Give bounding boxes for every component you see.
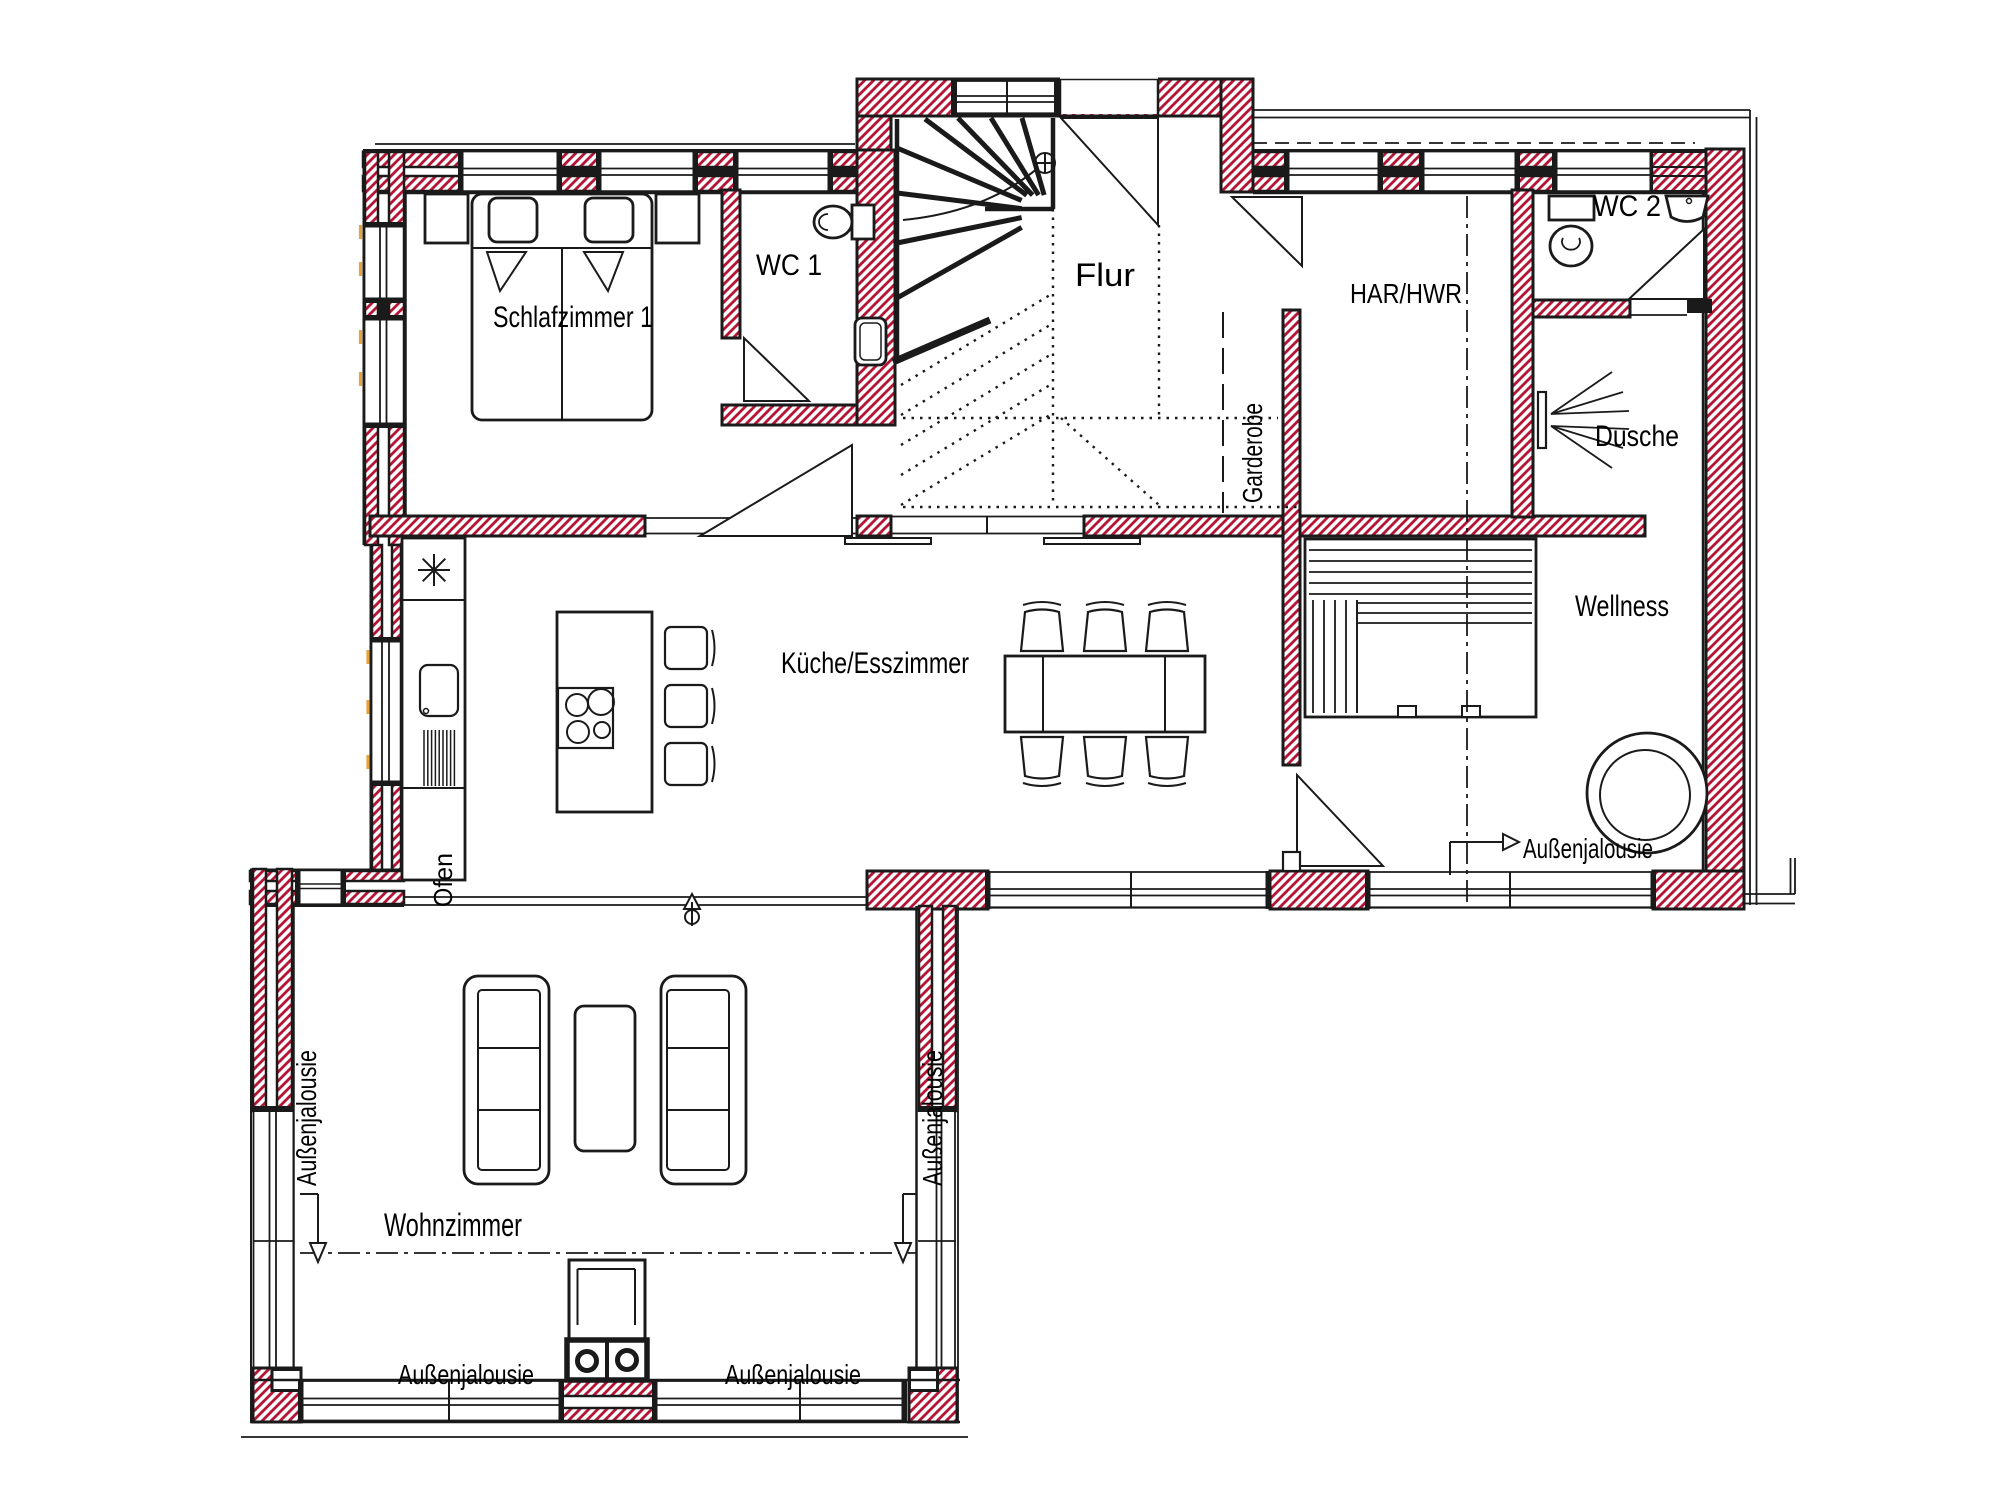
svg-text:WC 2: WC 2: [1593, 190, 1661, 223]
svg-text:Außenjalousie: Außenjalousie: [398, 1359, 534, 1390]
svg-text:WC 1: WC 1: [756, 249, 822, 282]
svg-text:Wohnzimmer: Wohnzimmer: [384, 1207, 522, 1243]
svg-text:Schlafzimmer 1: Schlafzimmer 1: [493, 301, 653, 334]
svg-text:Dusche: Dusche: [1595, 420, 1679, 453]
svg-text:Außenjalousie: Außenjalousie: [291, 1050, 322, 1186]
svg-text:Wellness: Wellness: [1575, 590, 1669, 623]
svg-text:Ofen: Ofen: [428, 853, 458, 907]
svg-text:Garderobe: Garderobe: [1237, 403, 1268, 503]
svg-text:Außenjalousie: Außenjalousie: [725, 1359, 861, 1390]
svg-text:HAR/HWR: HAR/HWR: [1350, 278, 1462, 309]
svg-text:Außenjalousie: Außenjalousie: [1523, 833, 1653, 864]
svg-text:Flur: Flur: [1075, 257, 1135, 293]
svg-text:Küche/Esszimmer: Küche/Esszimmer: [781, 647, 969, 680]
svg-text:Außenjalousie: Außenjalousie: [917, 1050, 948, 1186]
